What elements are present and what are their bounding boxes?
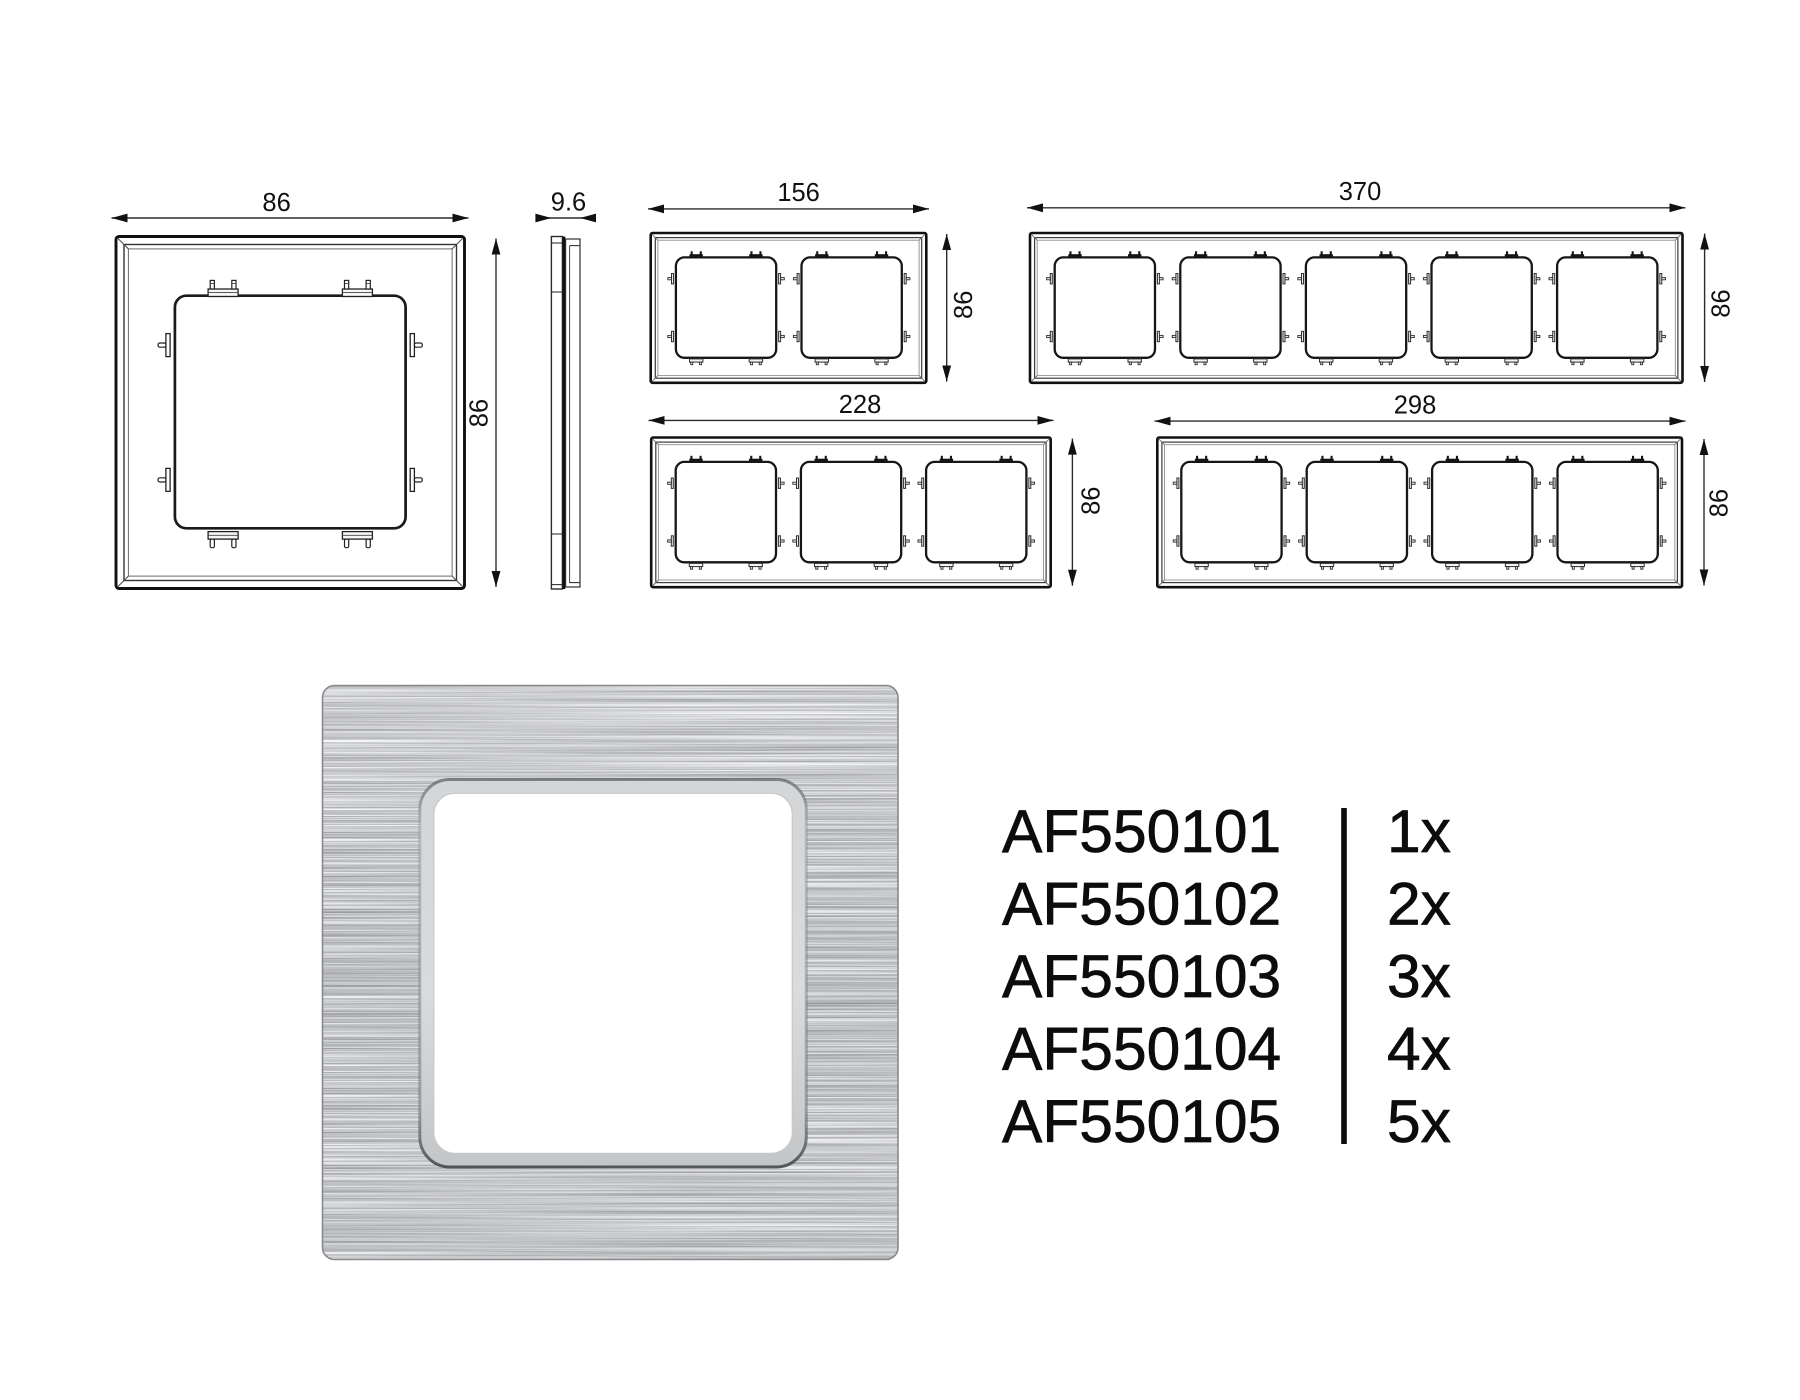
svg-text:86: 86 (1708, 289, 1736, 317)
svg-text:228: 228 (839, 391, 882, 419)
svg-text:298: 298 (1394, 392, 1437, 420)
svg-text:3x: 3x (1387, 942, 1451, 1010)
svg-text:AF550101: AF550101 (1002, 797, 1281, 865)
svg-text:AF550103: AF550103 (1002, 942, 1281, 1010)
svg-text:5x: 5x (1387, 1087, 1451, 1155)
svg-text:86: 86 (1077, 487, 1105, 515)
svg-text:2x: 2x (1387, 870, 1451, 938)
svg-text:AF550102: AF550102 (1002, 870, 1281, 938)
svg-text:AF550104: AF550104 (1002, 1015, 1281, 1083)
svg-text:86: 86 (466, 399, 494, 427)
svg-text:4x: 4x (1387, 1015, 1451, 1083)
svg-text:86: 86 (262, 189, 290, 217)
svg-text:AF550105: AF550105 (1002, 1087, 1281, 1155)
svg-text:1x: 1x (1387, 797, 1451, 865)
svg-text:370: 370 (1339, 178, 1382, 206)
svg-text:86: 86 (950, 291, 978, 319)
svg-text:156: 156 (777, 179, 820, 207)
svg-text:9.6: 9.6 (551, 189, 586, 217)
svg-text:86: 86 (1706, 489, 1734, 517)
